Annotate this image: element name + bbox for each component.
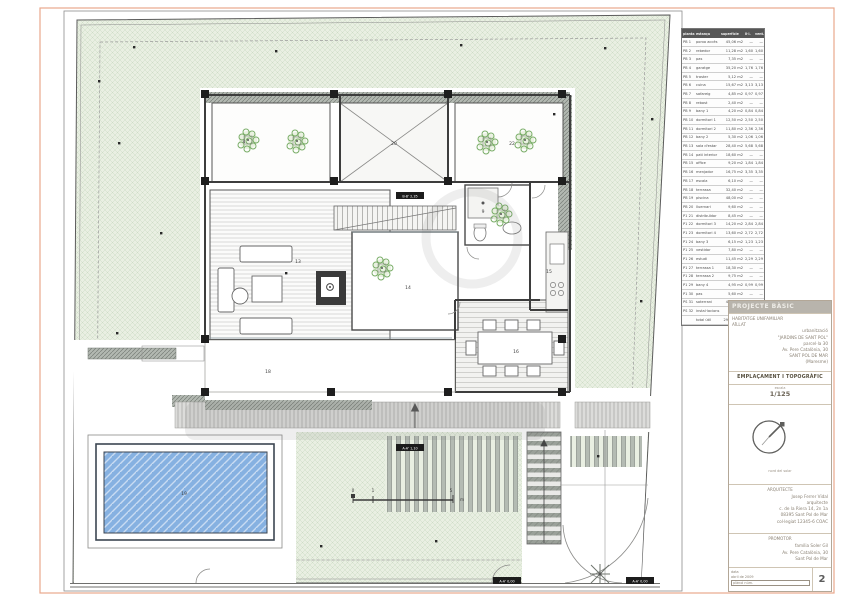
north-needle xyxy=(769,425,781,437)
footer-lines: dataabril de 2009 xyxy=(731,570,810,579)
schedule-row: P1 30pas5,60 m2—— xyxy=(682,290,764,299)
schedule-header-cell: vent. xyxy=(754,32,764,36)
drawing-sheet: 0 1 5 m B-B' 2,35A-A' 1,10A-A' 0,00A-A' … xyxy=(0,0,847,600)
survey-point xyxy=(285,272,287,274)
title-block: PROJECTE BÀSIC HABITATGE UNIFAMILIARAÏLL… xyxy=(728,300,832,592)
room-schedule-head: plantaestançasuperfícieil·l.vent. xyxy=(682,29,764,38)
room-number-label: 14 xyxy=(405,285,411,291)
north-caption: nord del solar xyxy=(729,469,831,473)
schedule-row: PB 18terrassa32,40 m2—— xyxy=(682,186,764,195)
scalebar-one: 1 xyxy=(372,488,375,493)
covered-terrace xyxy=(205,340,455,392)
promoter-header: PROMOTOR xyxy=(732,536,828,541)
titleblock-line: col·legiat 12345-6 COAC xyxy=(732,519,828,525)
garden-steps-right xyxy=(570,436,642,467)
shower-drain xyxy=(482,202,485,205)
survey-point xyxy=(640,300,642,302)
survey-point xyxy=(651,118,653,120)
section-mark: A-A' 1,10 xyxy=(396,444,424,451)
schedule-row: P1 26estudi11,45 m22,292,29 xyxy=(682,255,764,264)
architect-header: ARQUITECTE xyxy=(732,487,828,492)
coffee-table xyxy=(252,276,282,302)
schedule-row: PB 9bany 14,20 m20,840,84 xyxy=(682,108,764,117)
street-edge xyxy=(70,584,660,588)
footer-box: plànol núm. xyxy=(731,580,810,586)
schedule-row: P1 24bany 36,15 m21,231,23 xyxy=(682,238,764,247)
architect-lines: Josep Ferrer Vidalarquitectec. de la Rie… xyxy=(732,494,828,525)
scalebar-five: 5 xyxy=(450,488,453,493)
svg-text:A-A' 1,10: A-A' 1,10 xyxy=(402,447,417,451)
schedule-row: PB 8rebost2,40 m2—— xyxy=(682,99,764,108)
survey-point xyxy=(275,50,277,52)
schedule-row: PB 6cuina15,67 m23,133,13 xyxy=(682,81,764,90)
retaining-wall xyxy=(88,348,176,359)
scale-block: escala 1/125 xyxy=(729,385,831,405)
scalebar-unit: m xyxy=(460,497,464,502)
schedule-row: PB 19piscina48,00 m2—— xyxy=(682,194,764,203)
schedule-row: PB 15office9,20 m21,841,84 xyxy=(682,160,764,169)
schedule-row: PB 1porxo accés45,06 m2—— xyxy=(682,38,764,47)
promoter-lines: família Soler GilAv. Pere Catalònia, 30S… xyxy=(732,543,828,562)
schedule-row: PB 13sala d'estar28,40 m25,685,68 xyxy=(682,142,764,151)
scale-value: 1/125 xyxy=(729,390,831,398)
footer-block: dataabril de 2009 plànol núm. 2 xyxy=(729,568,831,591)
room-number-label: 22 xyxy=(509,141,515,147)
sofa-left xyxy=(218,268,234,312)
schedule-header-cell: il·l. xyxy=(744,32,754,36)
schedule-row: P1 25vestidor7,80 m2—— xyxy=(682,247,764,256)
schedule-row: PB 5traster5,12 m2—— xyxy=(682,73,764,82)
schedule-row: PB 12bany 25,30 m21,061,06 xyxy=(682,134,764,143)
survey-point xyxy=(320,545,322,547)
schedule-row: P1 27terrassa 118,30 m2—— xyxy=(682,264,764,273)
survey-point xyxy=(553,113,555,115)
plan-title: EMPLAÇAMENT I TOPOGRÀFIC xyxy=(737,375,823,380)
titleblock-line: (Maresme) xyxy=(732,359,828,365)
kitchen-sink xyxy=(550,244,564,264)
room-number-label: 9 xyxy=(482,209,485,215)
armchair xyxy=(232,288,248,304)
schedule-row: PB 20lluernari9,60 m2—— xyxy=(682,203,764,212)
inner-courtyard xyxy=(352,232,458,330)
north-block: nord del solar xyxy=(729,405,831,484)
north-compass-icon xyxy=(729,405,831,467)
schedule-row: PB 4garatge35,20 m21,761,76 xyxy=(682,64,764,73)
scalebar-zero: 0 xyxy=(352,488,355,493)
schedule-row: PB 11dormitori 211,80 m22,362,36 xyxy=(682,125,764,134)
survey-point xyxy=(597,455,599,457)
fireplace xyxy=(316,271,346,305)
svg-text:B-B' 2,35: B-B' 2,35 xyxy=(402,195,417,199)
room-number-label: 19 xyxy=(181,491,187,497)
room-schedule-body: PB 1porxo accés45,06 m2——PB 2rebedor11,2… xyxy=(682,38,764,325)
top-wall-band xyxy=(205,92,570,103)
survey-point xyxy=(160,232,162,234)
sofa-bottom xyxy=(240,318,292,334)
schedule-row: PB 2rebedor11,28 m21,601,60 xyxy=(682,47,764,56)
section-mark: B-B' 2,35 xyxy=(396,192,424,199)
schedule-row: P1 28terrassa 29,75 m2—— xyxy=(682,273,764,282)
schedule-header-cell: estança xyxy=(695,32,720,36)
architect-block: ARQUITECTE Josep Ferrer Vidalarquitectec… xyxy=(729,485,831,535)
room-number-label: 15 xyxy=(546,269,552,275)
survey-point xyxy=(604,47,606,49)
schedule-row: PB 16menjador16,75 m23,353,35 xyxy=(682,168,764,177)
sofa-top xyxy=(240,246,292,262)
survey-point xyxy=(116,332,118,334)
deck-band-right xyxy=(575,402,650,428)
schedule-row: P1 29bany 44,95 m20,990,99 xyxy=(682,281,764,290)
sheet-number: 2 xyxy=(813,568,831,591)
promoter-block: PROMOTOR família Soler GilAv. Pere Catal… xyxy=(729,534,831,568)
room-schedule: plantaestançasuperfícieil·l.vent. PB 1po… xyxy=(681,28,765,326)
schedule-row: PB 17escala6,10 m2—— xyxy=(682,177,764,186)
schedule-header-cell: planta xyxy=(682,32,695,36)
schedule-row: P1 23dormitori 413,60 m22,722,72 xyxy=(682,229,764,238)
schedule-row: P1 21distribuïdor8,45 m2—— xyxy=(682,212,764,221)
room-number-label: 13 xyxy=(295,259,301,265)
schedule-row: P1 22dormitori 314,20 m22,842,84 xyxy=(682,220,764,229)
titleblock-line: Sant Pol de Mar xyxy=(732,556,828,562)
project-info: HABITATGE UNIFAMILIARAÏLLATurbanització"… xyxy=(729,314,831,372)
schedule-row: PB 7safareig4,85 m20,970,97 xyxy=(682,90,764,99)
svg-text:A-A' 0,00: A-A' 0,00 xyxy=(499,580,514,584)
phase-header: PROJECTE BÀSIC xyxy=(729,301,831,314)
dining-table xyxy=(478,332,552,364)
survey-point xyxy=(133,46,135,48)
survey-point xyxy=(460,44,462,46)
patio-left xyxy=(212,103,330,182)
room-number-label: 18 xyxy=(265,369,271,375)
schedule-row: PB 3pas7,35 m2—— xyxy=(682,55,764,64)
room-number-label: 16 xyxy=(513,349,519,355)
schedule-header-cell: superfície xyxy=(720,32,744,36)
survey-point xyxy=(98,80,100,82)
section-mark: A-A' 0,00 xyxy=(626,577,654,584)
titleblock-line: abril de 2009 xyxy=(731,575,810,580)
survey-point xyxy=(435,540,437,542)
room-number-label: 4 xyxy=(243,139,246,145)
section-mark: A-A' 0,00 xyxy=(493,577,521,584)
survey-point xyxy=(118,142,120,144)
schedule-row: PB 10dormitori 112,50 m22,502,50 xyxy=(682,116,764,125)
schedule-row: PB 14pati interior18,60 m2—— xyxy=(682,151,764,160)
svg-text:A-A' 0,00: A-A' 0,00 xyxy=(632,580,647,584)
room-number-label: 20 xyxy=(391,141,397,147)
